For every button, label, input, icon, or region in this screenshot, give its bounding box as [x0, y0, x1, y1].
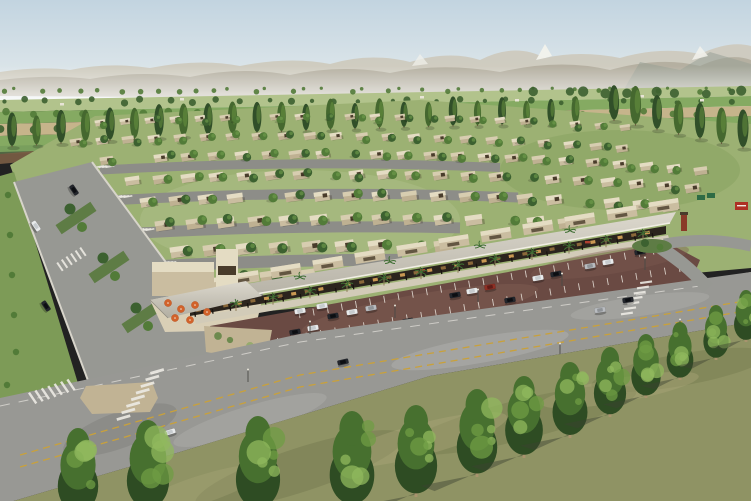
poplar-shadow	[474, 125, 483, 129]
far-tree	[736, 86, 746, 96]
yard-tree-highlight	[385, 212, 389, 216]
foliage-highlight	[599, 379, 612, 392]
far-tree	[529, 87, 538, 96]
far-tree	[12, 87, 15, 90]
far-tree	[518, 88, 522, 92]
strip-end-building-roof	[152, 262, 214, 272]
poplar-highlight	[613, 89, 618, 111]
house-window	[497, 174, 502, 178]
verge-tree	[4, 382, 10, 388]
yard-tree-highlight	[279, 170, 283, 174]
yard-tree-highlight	[280, 117, 283, 120]
poplar-highlight	[11, 116, 16, 137]
house-window	[76, 140, 80, 143]
house-window	[665, 183, 670, 187]
foliage-highlight	[405, 428, 414, 437]
yard-tree-highlight	[417, 137, 421, 141]
yard-tree-highlight	[272, 194, 276, 198]
far-tree	[640, 108, 647, 115]
poplar-highlight	[256, 105, 260, 124]
far-tree	[559, 101, 564, 106]
far-tree	[156, 89, 161, 94]
poplar-shadow	[695, 138, 708, 142]
yard-tree-highlight	[461, 155, 465, 159]
far-tree	[75, 99, 82, 106]
yard-tree-highlight	[336, 172, 340, 176]
yard-tree-highlight	[503, 193, 507, 197]
foliage-highlight	[679, 355, 686, 362]
far-tree	[420, 88, 424, 92]
monument-cap	[680, 212, 688, 215]
far-tree	[57, 88, 62, 93]
yard-tree-highlight	[520, 138, 524, 142]
far-tree	[600, 88, 610, 98]
roundabout-tree	[641, 239, 649, 247]
yard-tree-highlight	[157, 116, 160, 119]
umbrella-tip	[180, 308, 182, 310]
highway-sign-green	[707, 193, 715, 198]
poplar-shadow	[56, 143, 68, 147]
aerial-render	[0, 0, 751, 501]
yard-tree-highlight	[103, 123, 106, 126]
yard-tree-highlight	[321, 133, 325, 137]
poplar-highlight	[85, 113, 90, 133]
foliage-highlight	[560, 379, 575, 394]
house-window	[200, 117, 203, 120]
yard-tree-highlight	[482, 118, 485, 121]
house-window	[525, 120, 528, 123]
poplar-highlight	[721, 111, 726, 133]
yard-tree-highlight	[578, 125, 581, 128]
far-tree	[397, 87, 400, 90]
foliage-highlight	[470, 436, 493, 459]
yard-tree-highlight	[330, 114, 333, 117]
foliage-highlight	[481, 397, 502, 418]
poplar-highlight	[550, 101, 554, 116]
foliage-highlight	[152, 433, 171, 452]
verge-tree	[5, 192, 11, 198]
far-tree	[237, 98, 243, 104]
far-tree	[177, 89, 183, 95]
yard-tree-highlight	[546, 158, 550, 162]
far-tree	[457, 96, 463, 102]
highway-sign-green	[697, 195, 705, 200]
far-tree	[21, 96, 28, 103]
far-tree	[702, 90, 711, 99]
far-tree	[168, 97, 175, 104]
house-window	[593, 160, 597, 164]
yard-tree-highlight	[227, 215, 231, 219]
far-tree	[666, 87, 669, 90]
far-tree	[78, 89, 83, 94]
far-tree	[480, 88, 484, 92]
foliage-highlight	[247, 440, 271, 464]
foliage-highlight	[641, 369, 654, 382]
yard-tree-highlight	[357, 213, 361, 217]
yard-tree-highlight	[222, 174, 226, 178]
poplar-shadow	[33, 145, 44, 149]
yard-tree-highlight	[618, 203, 622, 207]
yard-tree-highlight	[193, 151, 197, 155]
poplar-highlight	[699, 106, 704, 128]
yard-tree-highlight	[292, 215, 296, 219]
poplar-highlight	[635, 90, 641, 114]
yard-tree-highlight	[589, 200, 593, 204]
far-tree	[288, 98, 295, 105]
poplar-shadow	[376, 128, 387, 132]
foliage-highlight	[86, 480, 95, 489]
yard-tree-highlight	[409, 115, 412, 118]
house-window	[554, 197, 559, 202]
foliage-highlight	[613, 369, 630, 386]
foliage-highlight	[709, 311, 723, 325]
foliage-highlight	[74, 442, 94, 462]
yard-tree-highlight	[391, 135, 395, 139]
house-window	[245, 173, 250, 177]
far-tree	[622, 89, 632, 99]
farm-building	[640, 95, 644, 98]
house-window	[485, 155, 489, 159]
far-tree	[386, 88, 391, 93]
entry-monument-sign	[681, 214, 687, 231]
yard-tree-highlight	[547, 143, 551, 147]
far-tree	[350, 89, 356, 95]
yard-tree-highlight	[307, 169, 311, 173]
yard-tree-highlight	[676, 167, 680, 171]
far-tree	[2, 89, 7, 94]
foliage-highlight	[673, 332, 678, 337]
yard-tree-highlight	[104, 136, 108, 140]
poplar-shadow	[449, 126, 460, 130]
foliage-highlight	[361, 432, 376, 447]
yard-tree-highlight	[569, 156, 573, 160]
poplar-highlight	[60, 113, 65, 133]
poplar-highlight	[678, 104, 683, 125]
house-window	[620, 162, 624, 166]
foliage-highlight	[269, 465, 280, 476]
far-tree	[578, 86, 588, 96]
yard-tree-highlight	[475, 193, 479, 197]
far-tree	[320, 87, 323, 90]
median-tree	[77, 222, 87, 232]
shrub	[227, 337, 233, 343]
yard-tree-highlight	[386, 241, 391, 246]
light-pole-head	[247, 369, 249, 371]
house-window	[637, 181, 642, 185]
yard-tree-highlight	[235, 131, 239, 135]
poplar-highlight	[575, 99, 579, 116]
yard-tree-highlight	[358, 174, 362, 178]
far-tree	[189, 99, 196, 106]
poplar-highlight	[36, 118, 40, 136]
scene-canvas	[0, 0, 751, 501]
far-tree	[194, 88, 199, 93]
foliage-highlight	[340, 455, 350, 465]
poplar-shadow	[401, 127, 410, 131]
poplar-shadow	[737, 148, 751, 152]
poplar-shadow	[425, 126, 434, 130]
poplar-highlight	[183, 107, 188, 127]
yard-tree-highlight	[514, 217, 518, 221]
foliage-highlight	[362, 420, 374, 432]
verge-tree	[7, 232, 13, 238]
yard-tree-highlight	[459, 116, 462, 119]
yard-tree-highlight	[446, 213, 450, 217]
yard-tree-highlight	[588, 177, 592, 181]
light-pole-head	[559, 343, 561, 345]
house-window	[350, 115, 353, 118]
yard-tree-highlight	[416, 214, 420, 218]
yard-tree-highlight	[83, 141, 87, 145]
shrub	[214, 332, 222, 340]
foliage-highlight	[638, 345, 654, 361]
far-tree	[42, 97, 48, 103]
yard-tree-highlight	[306, 114, 309, 117]
foliage-highlight	[707, 325, 721, 339]
yard-tree-highlight	[187, 247, 192, 252]
far-tree	[729, 89, 736, 96]
yard-tree-highlight	[434, 116, 437, 119]
house-window	[161, 155, 165, 159]
corner-planting-island	[80, 382, 158, 414]
yard-tree-highlight	[534, 174, 538, 178]
far-tree	[457, 87, 461, 91]
yard-tree-highlight	[495, 156, 499, 160]
verge-tree	[9, 272, 15, 278]
far-tree	[121, 99, 128, 106]
far-tree	[89, 96, 95, 102]
yard-tree-highlight	[212, 196, 216, 200]
foliage-highlight	[513, 420, 527, 434]
yard-tree-highlight	[321, 243, 326, 248]
median-tree	[131, 303, 142, 314]
farm-building	[420, 96, 424, 99]
light-pole-head	[394, 305, 396, 307]
yard-tree-highlight	[282, 244, 287, 249]
far-tree	[310, 99, 314, 103]
yard-tree-highlight	[362, 115, 365, 118]
yard-tree-highlight	[631, 165, 635, 169]
far-tree	[225, 87, 229, 91]
far-tree	[2, 99, 6, 103]
foliage-highlight	[410, 437, 428, 455]
foreground-tree	[339, 411, 364, 446]
yard-tree-highlight	[236, 117, 239, 120]
farm-building	[700, 99, 704, 102]
foliage-highlight	[575, 398, 582, 405]
yard-tree-highlight	[415, 172, 419, 176]
yard-tree-highlight	[523, 154, 527, 158]
yard-tree-highlight	[351, 243, 356, 248]
house-window	[622, 146, 626, 149]
far-tree	[302, 87, 306, 91]
far-tree	[445, 89, 450, 94]
yard-tree-highlight	[357, 190, 361, 194]
foliage-highlight	[425, 454, 434, 463]
far-tree	[670, 89, 679, 98]
yard-tree-highlight	[263, 133, 267, 137]
farm-building	[60, 103, 64, 106]
far-tree	[596, 88, 601, 93]
yard-tree-highlight	[381, 190, 385, 194]
light-pole-head	[309, 321, 311, 323]
median-tree	[143, 321, 153, 331]
yard-tree-highlight	[533, 118, 536, 121]
yard-tree-highlight	[211, 134, 215, 138]
yard-tree-highlight	[472, 138, 476, 142]
house-window	[322, 193, 327, 198]
yard-tree-highlight	[171, 152, 175, 156]
far-tree	[138, 89, 144, 95]
house-window	[336, 134, 340, 137]
poplar-shadow	[498, 124, 508, 128]
median-tree	[98, 253, 109, 264]
umbrella-tip	[167, 302, 169, 304]
foliage-highlight	[511, 401, 529, 419]
far-tree	[291, 89, 296, 94]
verge-tree	[11, 312, 17, 318]
yard-tree-highlight	[158, 139, 162, 143]
storefront-sign	[585, 241, 590, 243]
yard-tree-highlight	[644, 200, 648, 204]
far-tree	[268, 98, 273, 103]
far-tree	[621, 98, 627, 104]
tower-window-band	[218, 266, 236, 275]
poplar-shadow	[7, 146, 20, 150]
yard-tree-highlight	[178, 118, 181, 121]
foliage-highlight	[471, 424, 483, 436]
house-window	[693, 185, 698, 189]
house-window	[312, 243, 318, 248]
median-tree	[110, 271, 120, 281]
yard-tree-highlight	[274, 150, 278, 154]
yard-tree-highlight	[250, 244, 255, 249]
poplar-highlight	[428, 104, 432, 119]
poplar-highlight	[526, 103, 529, 118]
house-window	[125, 120, 128, 123]
far-tree	[263, 87, 266, 90]
house-window	[400, 115, 403, 118]
yard-tree-highlight	[386, 153, 390, 157]
yard-tree-highlight	[205, 119, 208, 122]
billboard-text-line	[737, 205, 746, 206]
yard-tree-highlight	[246, 154, 250, 158]
roundabout-island	[632, 239, 672, 253]
poplar-highlight	[109, 111, 114, 131]
far-tree	[500, 88, 505, 93]
house-window	[377, 152, 381, 156]
umbrella-tip	[174, 317, 176, 319]
house-window	[431, 153, 435, 157]
house-window	[475, 118, 478, 121]
yard-tree-highlight	[576, 141, 580, 145]
far-tree	[95, 88, 100, 93]
yard-tree-highlight	[447, 137, 451, 141]
yard-tree-highlight	[473, 175, 477, 179]
yard-tree-highlight	[532, 198, 536, 202]
yard-tree-highlight	[289, 132, 293, 136]
house-window	[512, 156, 516, 160]
far-tree	[360, 87, 364, 91]
house-window	[441, 173, 446, 177]
yard-tree-highlight	[604, 159, 608, 163]
verge-tree	[13, 349, 19, 355]
poplar-highlight	[501, 100, 505, 117]
yard-tree-highlight	[112, 159, 116, 163]
yard-tree-highlight	[152, 199, 156, 203]
far-tree	[705, 87, 708, 90]
yard-tree-highlight	[617, 179, 621, 183]
median-tree	[65, 204, 76, 215]
far-tree	[40, 89, 45, 94]
light-pole-head	[679, 319, 681, 321]
umbrella-tip	[189, 319, 191, 321]
yard-tree-highlight	[137, 139, 141, 143]
yard-tree-highlight	[220, 152, 224, 156]
roundabout-tree	[657, 244, 664, 251]
yard-tree-highlight	[299, 191, 303, 195]
house-window	[438, 193, 443, 198]
poplar-shadow	[652, 129, 665, 133]
yard-tree-highlight	[366, 137, 370, 141]
far-tree	[212, 96, 218, 102]
poplar-shadow	[352, 128, 362, 132]
yard-tree-highlight	[378, 118, 381, 121]
yard-tree-highlight	[552, 121, 555, 124]
yard-tree-highlight	[498, 140, 502, 144]
poplar-shadow	[674, 134, 686, 138]
side-road	[664, 240, 751, 246]
house-window	[225, 116, 228, 119]
light-pole-head	[477, 289, 479, 291]
yard-tree-highlight	[167, 176, 171, 180]
foliage-highlight	[577, 371, 588, 382]
yard-tree-highlight	[169, 218, 173, 222]
far-tree	[483, 99, 487, 103]
far-tree	[566, 87, 574, 95]
yard-tree-highlight	[253, 175, 257, 179]
poplar-highlight	[656, 99, 661, 120]
umbrella-tip	[206, 311, 208, 313]
poplar-highlight	[742, 113, 747, 137]
yard-tree-highlight	[654, 166, 658, 170]
foliage-highlight	[141, 468, 161, 488]
foliage-highlight	[487, 425, 496, 434]
yard-tree-highlight	[182, 138, 186, 142]
far-tree	[528, 97, 535, 104]
yard-tree-highlight	[603, 124, 606, 127]
yard-tree-highlight	[322, 217, 326, 221]
poplar-shadow	[609, 120, 622, 124]
yard-tree-highlight	[201, 216, 205, 220]
foliage-highlight	[743, 319, 748, 324]
light-pole-head	[644, 257, 646, 259]
yard-tree-highlight	[442, 154, 446, 158]
house-window	[440, 136, 444, 139]
foliage-highlight	[352, 467, 370, 485]
yard-tree-highlight	[185, 196, 189, 200]
yard-tree-highlight	[305, 150, 309, 154]
poplar-highlight	[452, 99, 456, 117]
light-pole-head	[561, 273, 563, 275]
yard-tree-highlight	[408, 152, 412, 156]
yard-tree-highlight	[506, 174, 510, 178]
yard-tree-highlight	[355, 151, 359, 155]
far-tree	[136, 96, 143, 103]
yard-tree-highlight	[325, 149, 329, 153]
farm-building	[180, 98, 184, 101]
farm-building	[515, 99, 519, 102]
